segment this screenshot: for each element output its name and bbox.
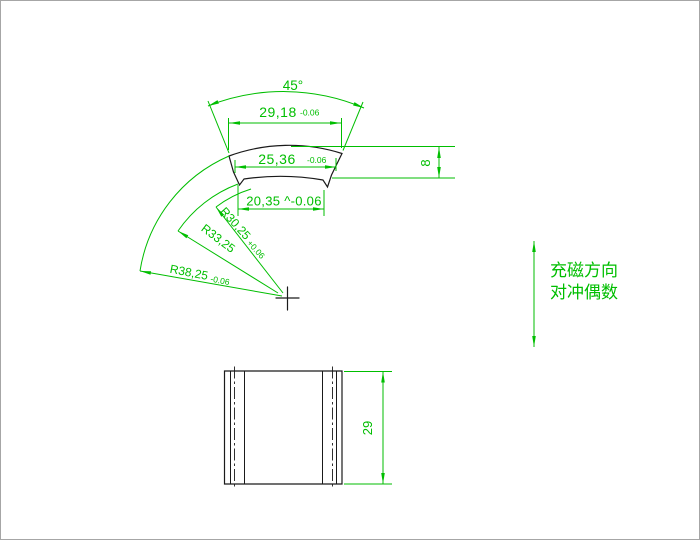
magnetize-note-line1: 充磁方向 <box>550 261 618 280</box>
dim-45-label: 45° <box>283 78 303 93</box>
dim-8-label-group: 8 <box>418 159 433 166</box>
dim-29-label: 29 <box>360 421 375 435</box>
dim-2536-value: 25,36 <box>258 151 296 167</box>
arrow-r3325 <box>178 231 188 238</box>
cad-drawing: 45° 29,18 -0.06 25,36 -0.06 20,35 ^-0.06… <box>1 1 700 540</box>
cad-drawing-canvas: 45° 29,18 -0.06 25,36 -0.06 20,35 ^-0.06… <box>0 0 700 540</box>
dimension-text: 45° 29,18 -0.06 25,36 -0.06 20,35 ^-0.06… <box>169 78 618 435</box>
dim-8-label: 8 <box>418 159 433 166</box>
radius-r3025-label-group: R30,25+0.06 <box>217 204 270 261</box>
radius-r3025-label: R30,25+0.06 <box>217 204 270 261</box>
magnetize-note-line2: 对冲偶数 <box>550 283 618 302</box>
arrow-29-bottom <box>381 473 385 484</box>
radius-r3825-label: R38,25-0.06 <box>169 262 232 287</box>
dim-2918-value: 29,18 <box>259 104 297 120</box>
dimension-arrowheads <box>140 100 536 484</box>
arrow-2918-right <box>330 121 341 125</box>
radius-arc-r3825 <box>140 156 229 271</box>
arrow-magnetize-up <box>532 241 536 252</box>
arrow-8-bottom <box>437 167 441 178</box>
radius-r3825-tolerance: -0.06 <box>210 274 231 288</box>
dim-2918-tolerance: -0.06 <box>300 108 320 118</box>
radius-r3825-label-group: R38,25-0.06 <box>169 262 232 287</box>
arrow-r3825 <box>140 271 151 275</box>
arrow-2536-left <box>235 165 246 169</box>
arrow-magnetize-down <box>532 336 536 347</box>
arrow-2918-left <box>229 121 240 125</box>
center-cross <box>276 287 299 310</box>
dim-45-leg-left <box>208 101 229 153</box>
dim-2536-tolerance: -0.06 <box>307 155 327 165</box>
dim-29-label-group: 29 <box>360 421 375 435</box>
side-view-geometry <box>225 367 343 490</box>
side-view-rect <box>225 371 343 484</box>
dim-2035-label: 20,35 ^-0.06 <box>246 194 321 209</box>
arrow-29-top <box>381 372 385 383</box>
arrow-45-left <box>208 100 219 106</box>
side-view-edge-lines <box>231 371 337 484</box>
arrow-8-top <box>437 147 441 158</box>
dim-45-leg-right <box>343 102 363 151</box>
